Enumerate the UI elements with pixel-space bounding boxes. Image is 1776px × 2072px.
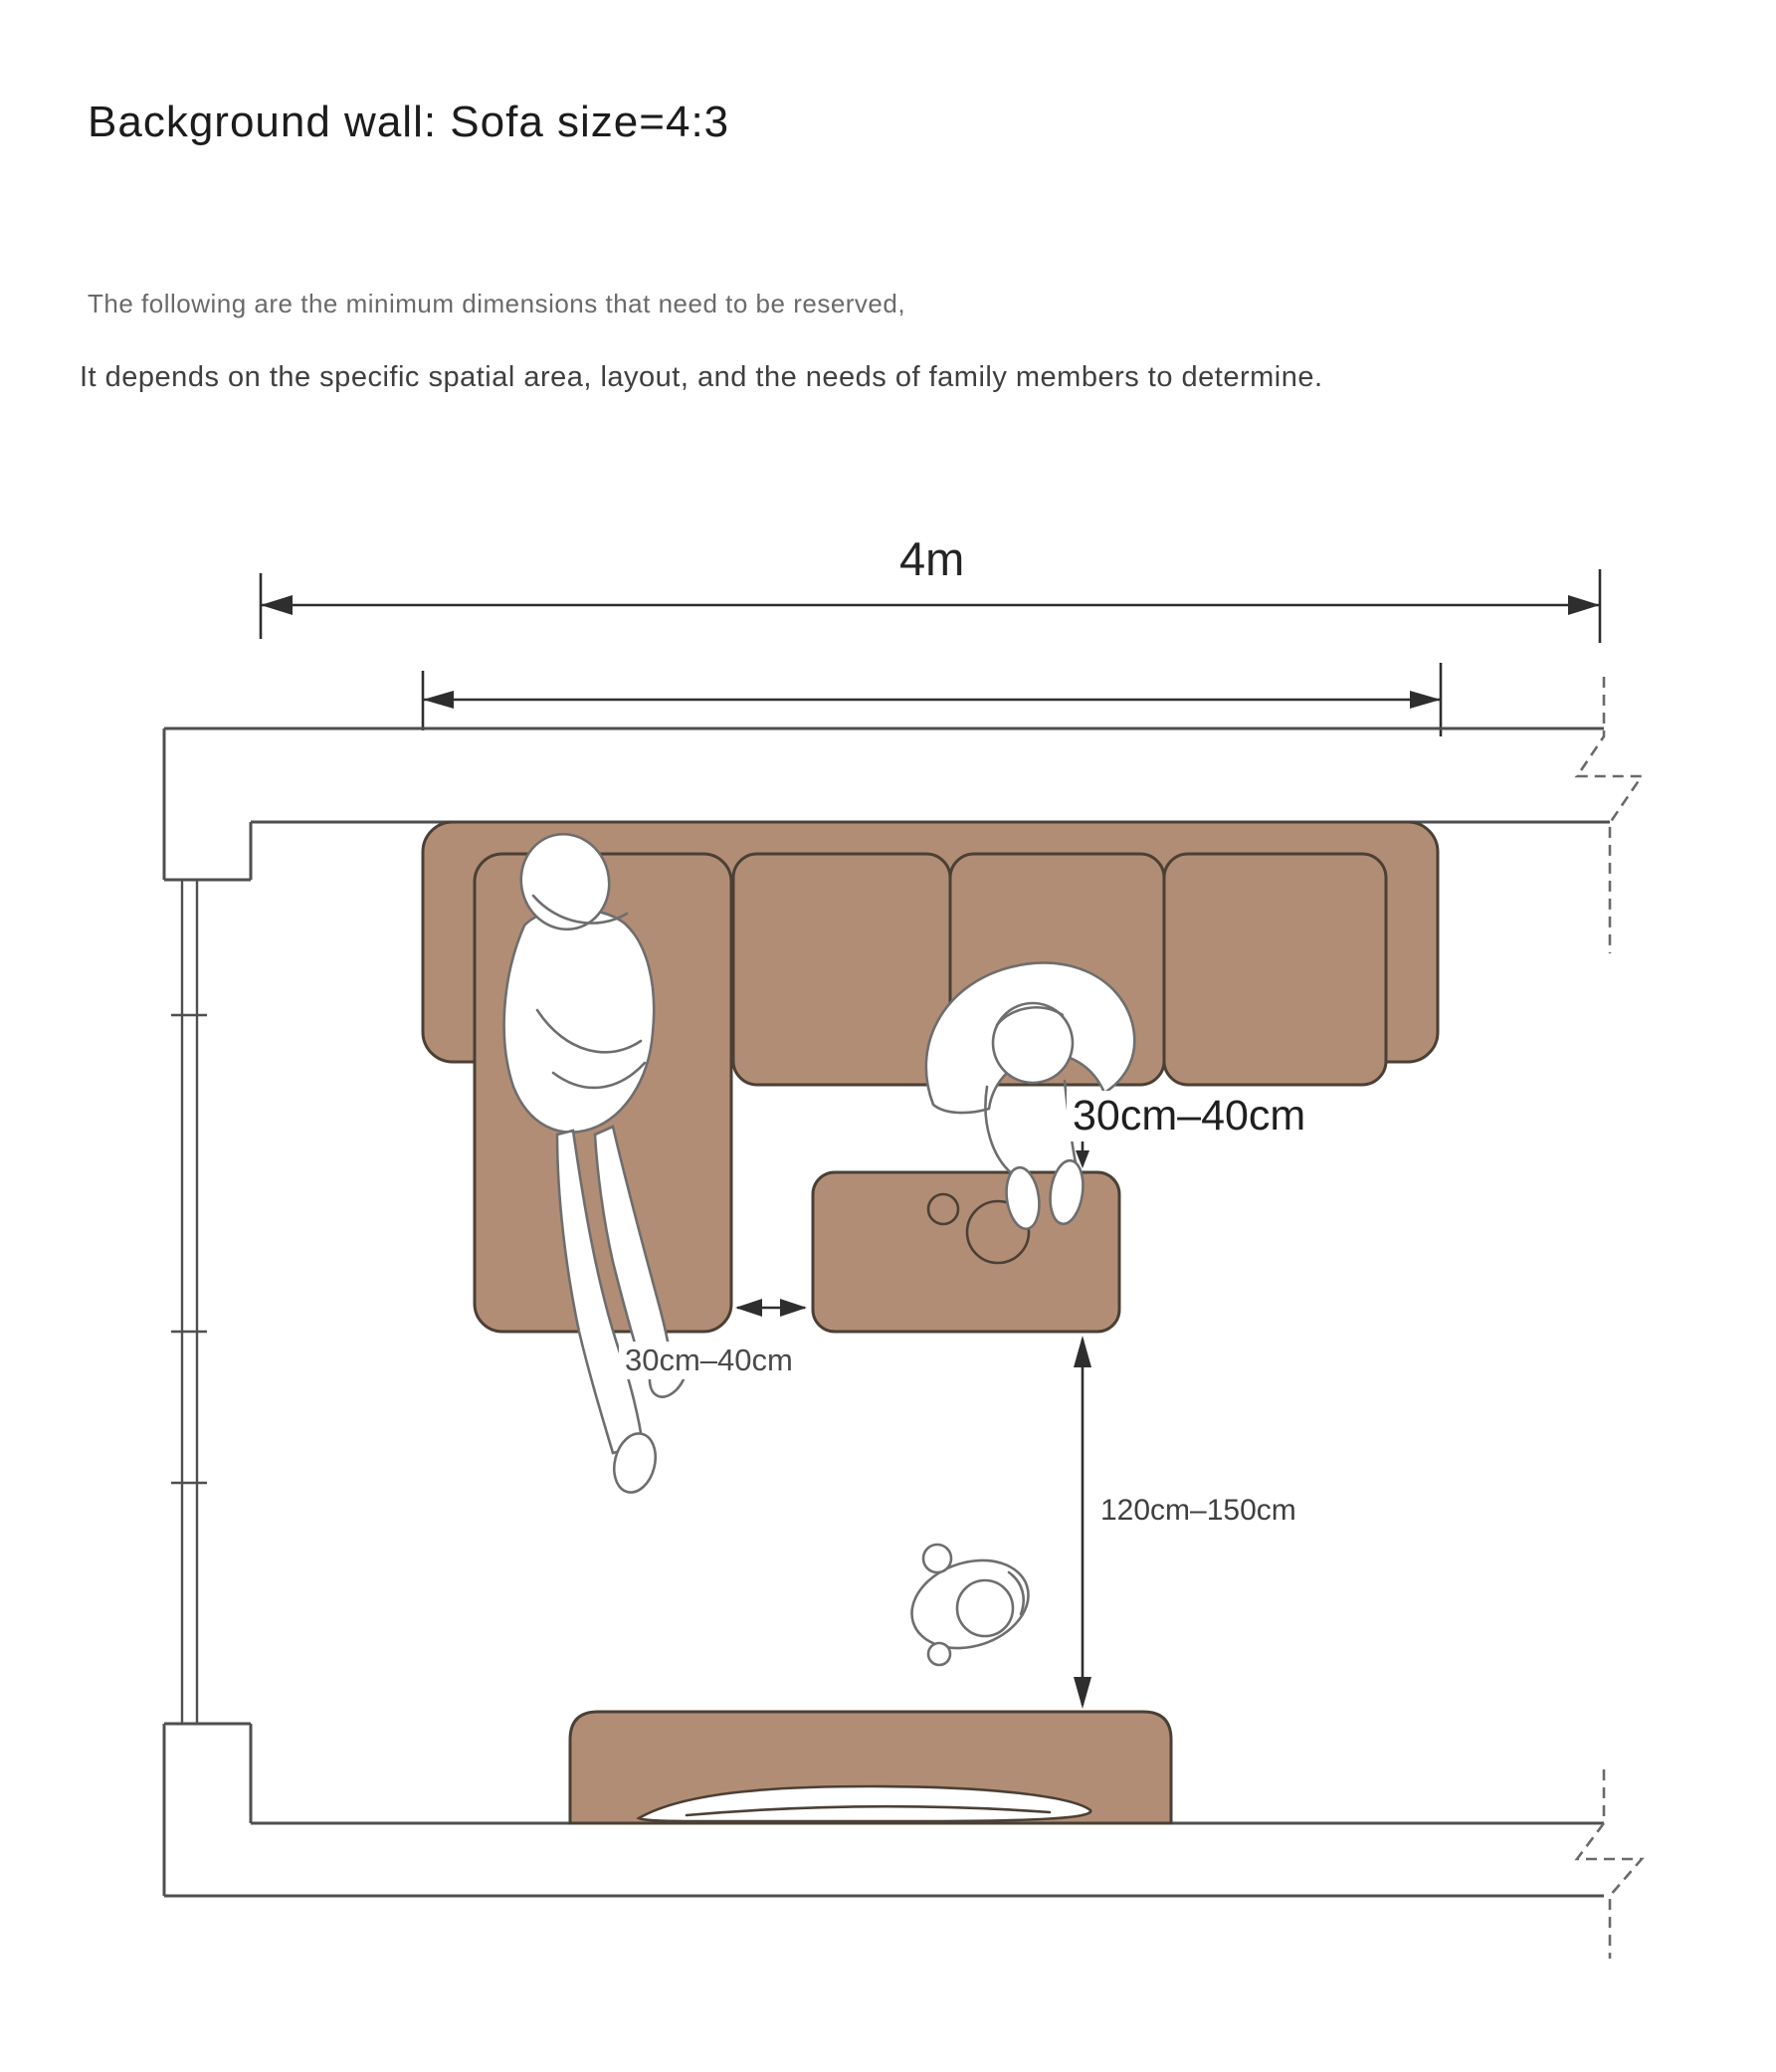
- wall-left-window: [171, 880, 207, 1724]
- head-icon: [957, 1580, 1013, 1636]
- dimension-chaise-table-gap: [735, 1299, 807, 1317]
- table-tv-distance-label: 120cm–150cm: [1094, 1492, 1302, 1529]
- floor-plan-figure: [0, 0, 1776, 2072]
- wall-break-bottom-right-icon: [1577, 1769, 1642, 1959]
- chaise-table-gap-label: 30cm–40cm: [619, 1342, 799, 1379]
- dimension-table-tv: [1074, 1336, 1091, 1709]
- dimension-sofa-width: [423, 663, 1441, 736]
- person-walking-icon: [900, 1545, 1040, 1665]
- sofa-table-gap-label: 30cm–40cm: [1067, 1091, 1311, 1141]
- hand-icon: [928, 1643, 950, 1665]
- sofa-cushion: [1164, 854, 1386, 1085]
- sofa-cushion: [733, 854, 950, 1085]
- wall-break-top-right-icon: [1577, 677, 1642, 953]
- diagram-page: Background wall: Sofa size=4:3 The follo…: [0, 0, 1776, 2072]
- tv-stand: [570, 1712, 1171, 1823]
- hand-icon: [923, 1545, 951, 1572]
- room-width-label: 4m: [893, 531, 970, 587]
